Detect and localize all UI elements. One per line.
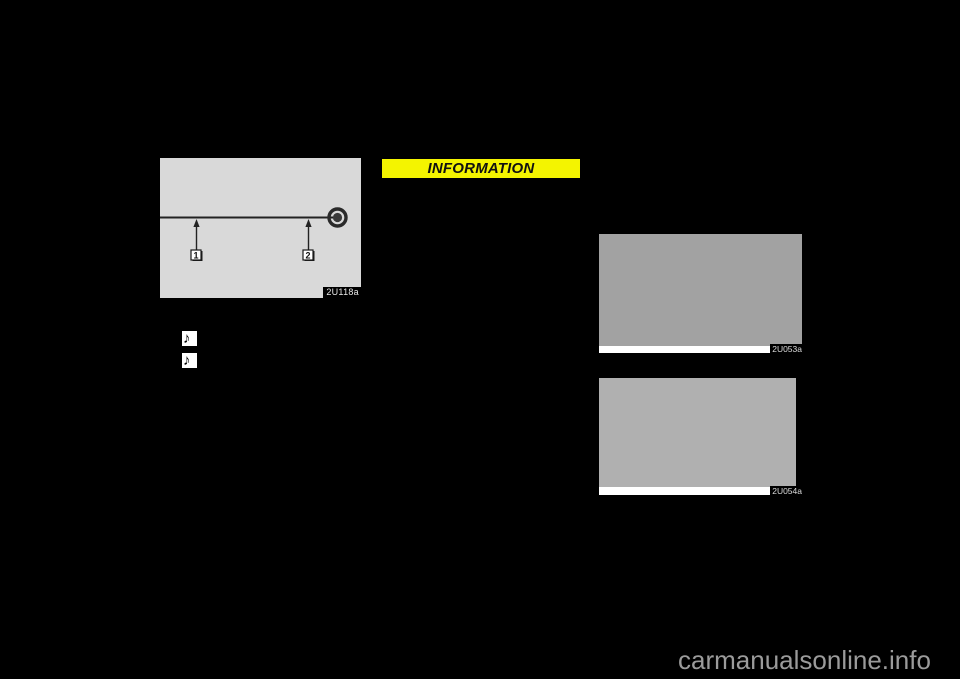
svg-text:2: 2 bbox=[305, 251, 310, 261]
svg-text:1: 1 bbox=[193, 251, 198, 261]
